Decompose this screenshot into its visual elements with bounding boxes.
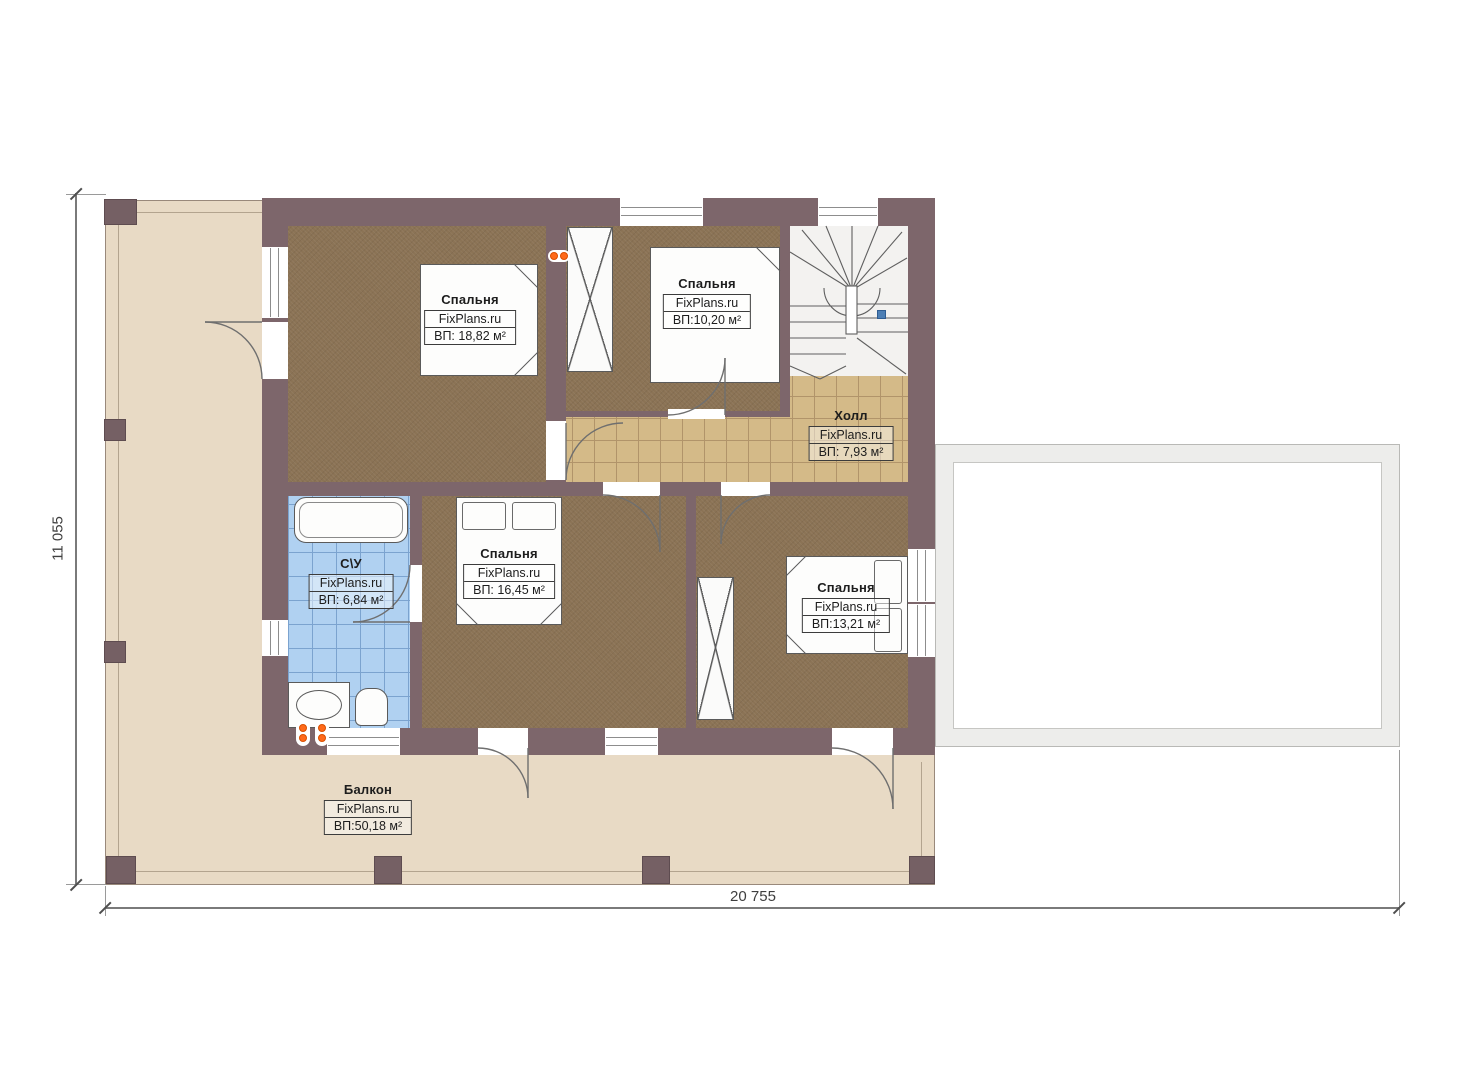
- window: [605, 728, 658, 755]
- brand-watermark: FixPlans.ru: [664, 295, 750, 312]
- room-name: Холл: [809, 408, 894, 423]
- bathtub: [294, 497, 408, 543]
- extension-line: [105, 886, 106, 916]
- room-label-bathroom: С\У FixPlans.ru ВП: 6,84 м²: [309, 556, 394, 609]
- brand-watermark: FixPlans.ru: [425, 311, 515, 328]
- socket-dot: [318, 724, 326, 732]
- room-name: Спальня: [463, 546, 555, 561]
- brand-watermark: FixPlans.ru: [464, 565, 554, 582]
- socket-icon: [296, 720, 310, 746]
- room-label-balcony: Балкон FixPlans.ru ВП:50,18 м²: [324, 782, 412, 835]
- balcony-border-left: [105, 200, 106, 885]
- dimension-line-bottom: [105, 907, 1400, 909]
- socket-icon: [315, 720, 329, 746]
- door-opening-bedroom2: [668, 409, 725, 419]
- room-area: ВП: 16,45 м²: [464, 582, 554, 598]
- room-area: ВП:50,18 м²: [325, 818, 411, 834]
- room-info-box: FixPlans.ru ВП:50,18 м²: [324, 800, 412, 835]
- room-info-box: FixPlans.ru ВП: 16,45 м²: [463, 564, 555, 599]
- balcony-border-bottom: [105, 884, 935, 885]
- wardrobe: [697, 577, 734, 720]
- dimension-line-left: [75, 193, 77, 885]
- room-name: Балкон: [324, 782, 412, 797]
- window: [908, 549, 935, 602]
- socket-dot: [299, 724, 307, 732]
- socket-icon: [548, 250, 570, 262]
- floor-plan: Спальня FixPlans.ru ВП: 18,82 м² Спальня…: [0, 0, 1474, 1080]
- stairwell-floor: [790, 226, 908, 376]
- room-name: Спальня: [802, 580, 890, 595]
- window: [262, 247, 288, 318]
- door-opening-balcony-south2: [832, 728, 893, 755]
- socket-dot: [560, 252, 568, 260]
- brand-watermark: FixPlans.ru: [803, 599, 889, 616]
- room-info-box: FixPlans.ru ВП: 7,93 м²: [809, 426, 894, 461]
- roof-outline-inner: [953, 462, 1382, 729]
- room-label-bedroom4: Спальня FixPlans.ru ВП:13,21 м²: [802, 580, 890, 633]
- balcony-post: [104, 641, 126, 663]
- window: [262, 620, 288, 656]
- room-area: ВП:13,21 м²: [803, 616, 889, 632]
- extension-line: [1399, 750, 1400, 916]
- window: [620, 198, 703, 226]
- room-label-hall: Холл FixPlans.ru ВП: 7,93 м²: [809, 408, 894, 461]
- room-area: ВП: 6,84 м²: [310, 592, 393, 608]
- pillow: [512, 502, 556, 530]
- room-name: С\У: [309, 556, 394, 571]
- door-opening-bedroom4: [721, 482, 770, 496]
- brand-watermark: FixPlans.ru: [310, 575, 393, 592]
- door-opening-balcony-south1: [478, 728, 528, 755]
- room-area: ВП: 7,93 м²: [810, 444, 893, 460]
- balcony-post: [642, 856, 670, 884]
- door-opening-bedroom3: [603, 482, 660, 496]
- balcony-post: [909, 856, 935, 884]
- balcony-rail-line-bottom: [118, 871, 922, 872]
- brand-watermark: FixPlans.ru: [325, 801, 411, 818]
- door-opening-bedroom1: [546, 421, 566, 480]
- sink-basin: [296, 690, 342, 720]
- room-info-box: FixPlans.ru ВП: 6,84 м²: [309, 574, 394, 609]
- room-label-bedroom3: Спальня FixPlans.ru ВП: 16,45 м²: [463, 546, 555, 599]
- room-label-bedroom2: Спальня FixPlans.ru ВП:10,20 м²: [663, 276, 751, 329]
- room-info-box: FixPlans.ru ВП:13,21 м²: [802, 598, 890, 633]
- socket-dot: [299, 734, 307, 742]
- room-label-bedroom1: Спальня FixPlans.ru ВП: 18,82 м²: [424, 292, 516, 345]
- corridor-floor: [566, 417, 790, 482]
- window: [818, 198, 878, 226]
- dimension-left-value: 11 055: [50, 499, 67, 579]
- brand-watermark: FixPlans.ru: [810, 427, 893, 444]
- balcony-rail-line-left: [118, 212, 119, 872]
- room-name: Спальня: [424, 292, 516, 307]
- window: [327, 728, 400, 755]
- socket-dot: [318, 734, 326, 742]
- wardrobe: [567, 227, 613, 372]
- balcony-rail-line-top: [118, 212, 263, 213]
- balcony-post: [374, 856, 402, 884]
- room-name: Спальня: [663, 276, 751, 291]
- room-area: ВП:10,20 м²: [664, 312, 750, 328]
- balcony-post: [104, 199, 137, 225]
- extension-line: [66, 884, 106, 885]
- window: [908, 604, 935, 657]
- balcony-post: [106, 856, 136, 884]
- room-info-box: FixPlans.ru ВП:10,20 м²: [663, 294, 751, 329]
- room-area: ВП: 18,82 м²: [425, 328, 515, 344]
- socket-dot: [550, 252, 558, 260]
- room-info-box: FixPlans.ru ВП: 18,82 м²: [424, 310, 516, 345]
- door-opening-balcony-west: [262, 322, 288, 379]
- balcony-post: [104, 419, 126, 441]
- dimension-bottom-value: 20 755: [688, 888, 818, 905]
- door-opening-bathroom: [410, 565, 422, 622]
- toilet: [355, 688, 388, 726]
- stair-direction-marker: [877, 310, 886, 319]
- pillow: [462, 502, 506, 530]
